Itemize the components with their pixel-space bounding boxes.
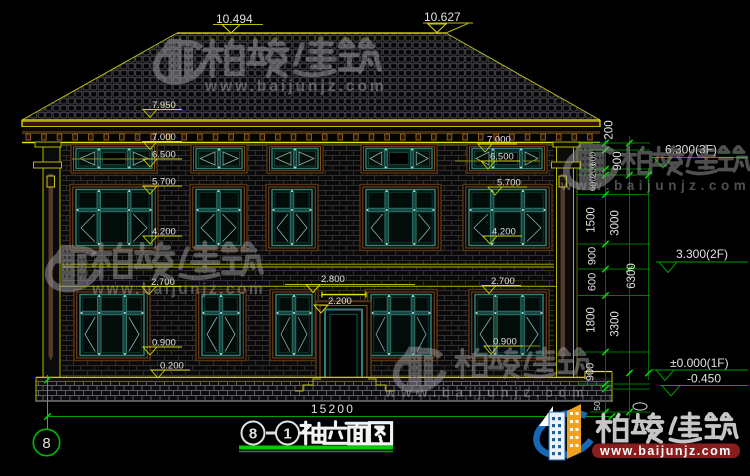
svg-text:1800: 1800: [586, 307, 598, 333]
svg-text:200: 200: [604, 120, 616, 139]
svg-text:2.800: 2.800: [321, 274, 345, 285]
svg-text:10.494: 10.494: [216, 12, 253, 26]
svg-text:15200: 15200: [311, 402, 355, 416]
svg-text:50: 50: [592, 401, 602, 411]
svg-text:±0.000(1F): ±0.000(1F): [670, 356, 729, 370]
svg-text:600: 600: [587, 273, 599, 291]
svg-text:www.baijunjz.com: www.baijunjz.com: [599, 444, 732, 458]
svg-text:8: 8: [42, 435, 50, 452]
svg-text:900: 900: [587, 247, 599, 265]
svg-text:3300: 3300: [610, 311, 622, 337]
svg-text:1500: 1500: [586, 207, 598, 233]
svg-text:2.200: 2.200: [328, 296, 352, 307]
svg-text:www.baijunjz.com: www.baijunjz.com: [91, 281, 265, 298]
svg-text:6300: 6300: [626, 263, 638, 289]
svg-text:1: 1: [283, 426, 291, 443]
svg-text:3000: 3000: [610, 210, 622, 236]
svg-text:www.baijunjz.com: www.baijunjz.com: [560, 178, 750, 193]
svg-text:www.baijunjz.com: www.baijunjz.com: [204, 78, 387, 95]
svg-text:-0.450: -0.450: [687, 372, 721, 386]
svg-text:www.baijunjz.com: www.baijunjz.com: [384, 385, 589, 400]
svg-text:10.627: 10.627: [424, 10, 461, 24]
svg-text:3.300(2F): 3.300(2F): [676, 247, 728, 261]
svg-text:8: 8: [249, 426, 257, 443]
